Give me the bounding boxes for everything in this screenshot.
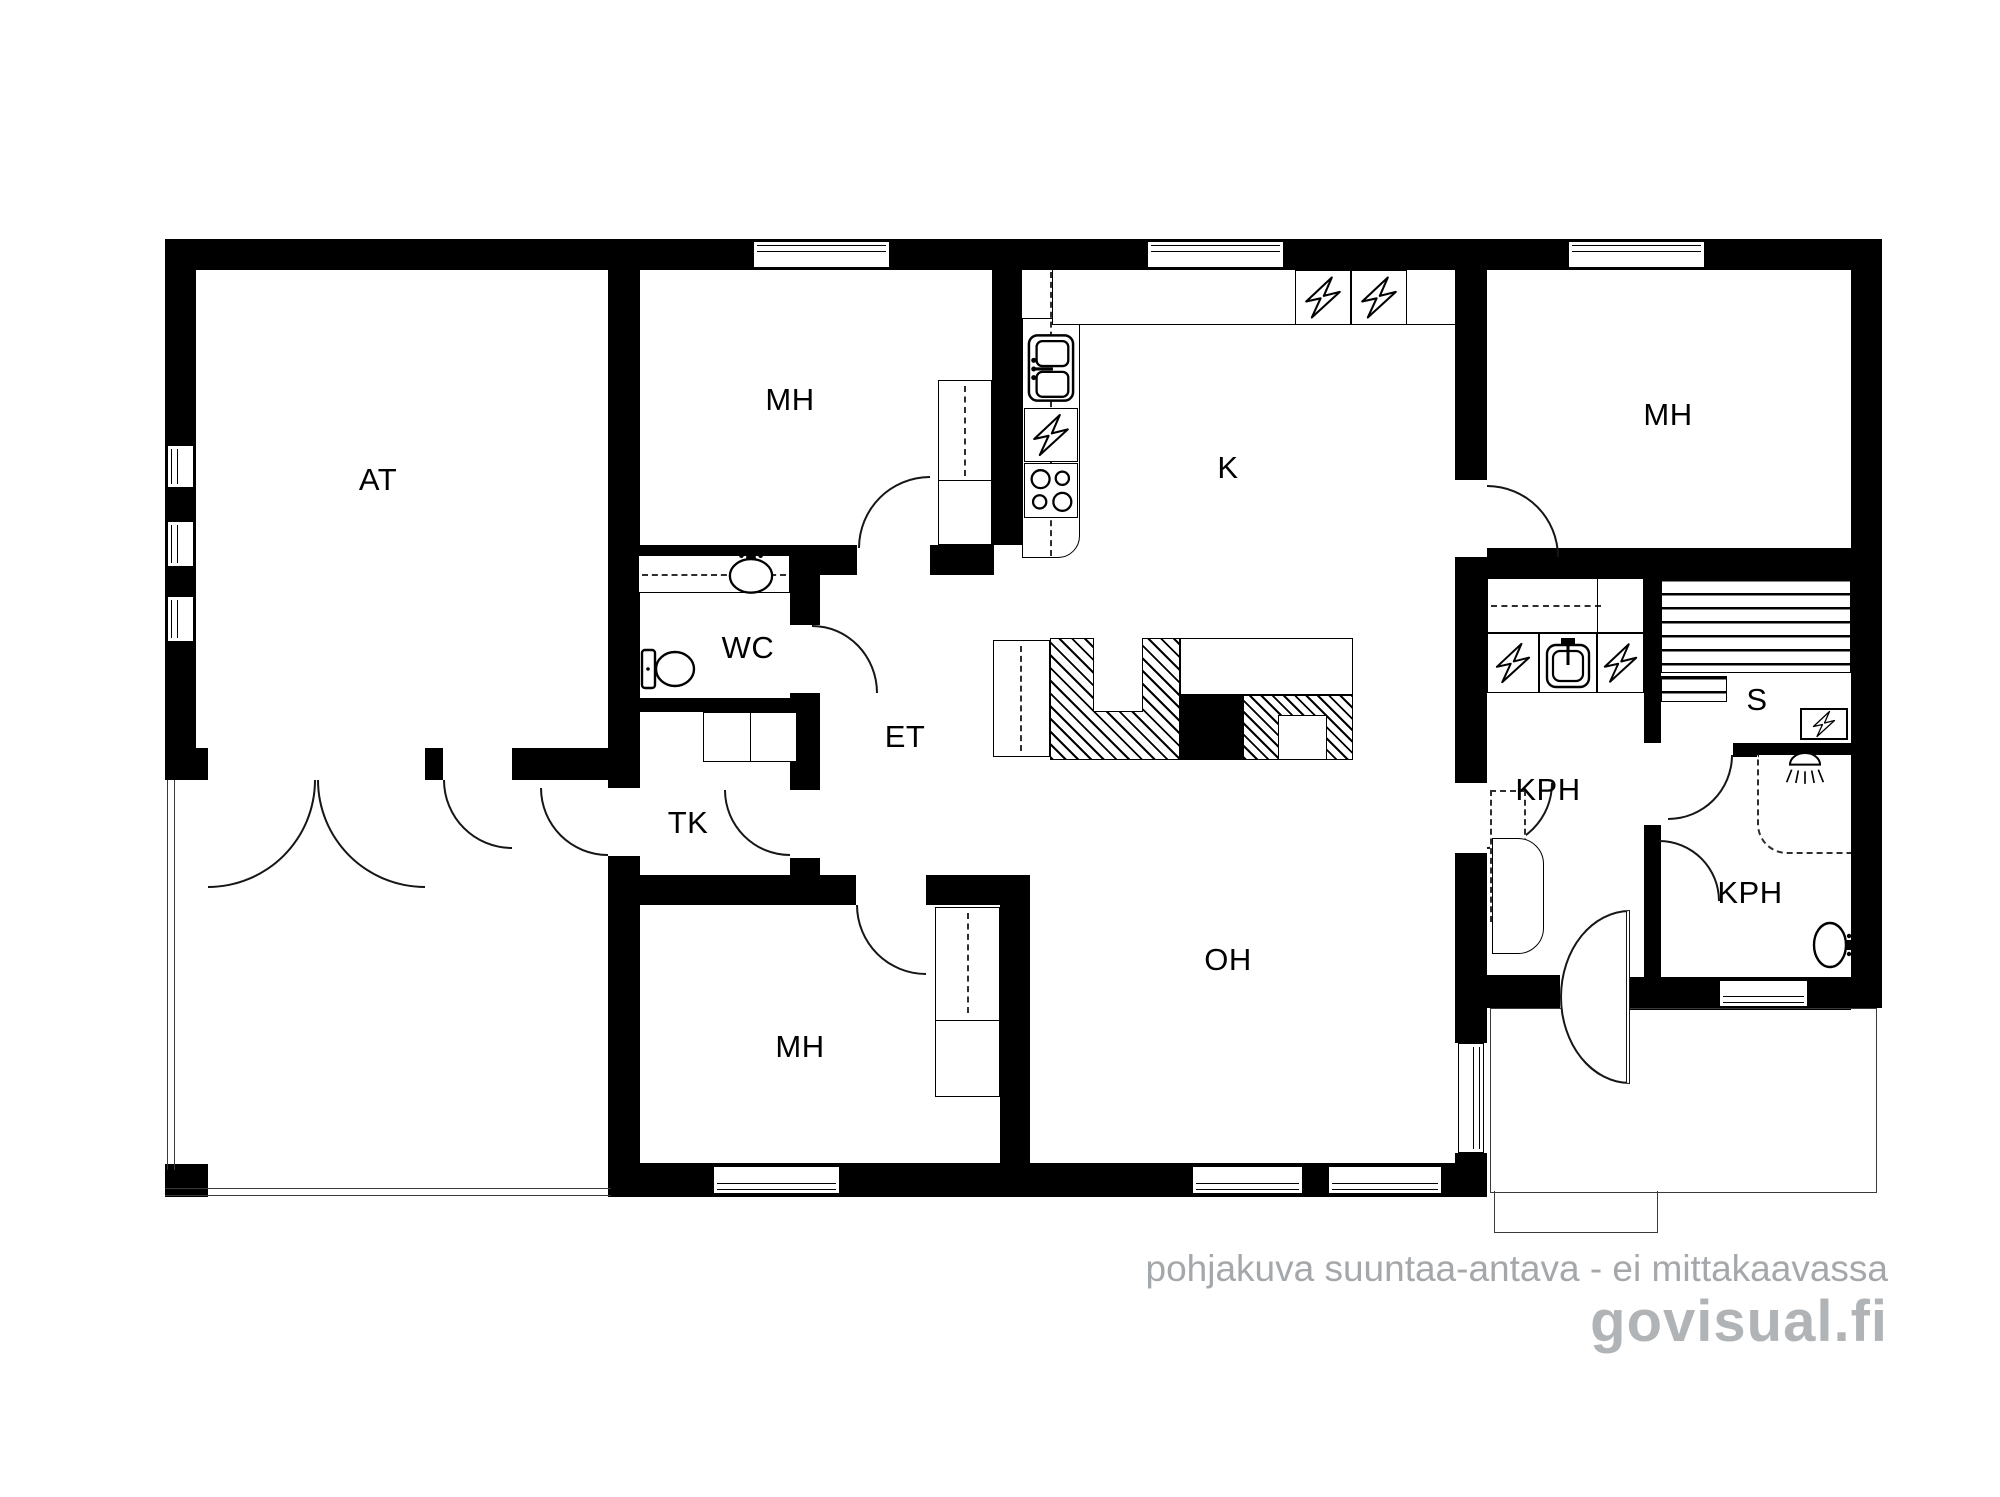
window-top-3	[1568, 241, 1705, 268]
garage-door-right-leaf	[317, 780, 425, 888]
toilet-icon	[640, 646, 696, 692]
dryer-lightning-icon	[1598, 636, 1643, 690]
wc-door	[812, 625, 878, 693]
tk-et-door	[724, 790, 790, 856]
fireplace-notch	[1093, 638, 1143, 712]
utility-cabinet	[1492, 838, 1544, 954]
mh-top-wardrobe-dash	[964, 386, 966, 476]
mh-right-door	[1487, 485, 1559, 557]
window-left-1	[167, 445, 194, 488]
room-label-tk: TK	[668, 805, 709, 841]
room-label-wc: WC	[722, 630, 775, 666]
room-label-s: S	[1746, 682, 1767, 718]
garage-side-door	[443, 780, 512, 849]
wall-k-mhright-b	[1455, 557, 1487, 783]
wall-kph-bottom-left	[1455, 975, 1560, 1008]
dishwasher-lightning-icon	[1027, 410, 1075, 460]
window-oh-2	[1328, 1166, 1442, 1194]
window-mh-bottom	[713, 1166, 840, 1194]
sauna-door	[1668, 755, 1733, 820]
wall-mhbottom-top-b	[926, 875, 1030, 905]
wall-k-mhright-c	[1455, 853, 1487, 975]
kitchen-sink-icon	[1027, 333, 1075, 403]
wall-garage-bottom-b	[425, 748, 443, 780]
sauna-stove-lightning-icon	[1805, 709, 1843, 739]
room-label-at: AT	[359, 462, 397, 498]
room-label-oh: OH	[1204, 942, 1252, 978]
mh-top-wardrobe-shelf	[938, 480, 992, 481]
wall-garage-bottom-a	[165, 748, 208, 780]
wall-garage-bottom-c	[512, 748, 608, 780]
window-oh-right	[1458, 1043, 1484, 1153]
sauna-benches	[1661, 578, 1851, 673]
wall-mhbottom-right	[1000, 905, 1030, 1163]
room-label-et: ET	[885, 719, 926, 755]
fridge-lightning-icon	[1299, 272, 1347, 323]
garage-door-left-leaf	[208, 780, 316, 888]
window-kph	[1719, 980, 1808, 1007]
wall-oh-right-lower	[1455, 1153, 1487, 1197]
carport-outline-left	[167, 780, 175, 1170]
wall-mhtop-kitchen	[992, 270, 1022, 545]
terrace-outline	[1490, 1008, 1877, 1193]
window-left-3	[167, 596, 194, 642]
room-label-kph-right: KPH	[1717, 875, 1782, 911]
kph-right-door	[1659, 840, 1720, 901]
utility-counter-dash	[1491, 605, 1601, 607]
utility-sink-icon	[1543, 635, 1593, 691]
fireplace-hearth	[1180, 638, 1353, 695]
disclaimer-text: pohjakuva suuntaa-antava - ei mittakaava…	[1146, 1248, 1889, 1290]
sauna-bench-low	[1661, 676, 1727, 702]
floor-plan: AT MH K MH WC ET TK S KPH OH MH KPH pohj…	[0, 0, 2000, 1497]
wall-sauna-divider-upper	[1644, 578, 1661, 743]
freezer-lightning-icon	[1355, 272, 1403, 323]
wall-garage-right-lower	[608, 856, 640, 1197]
window-top-2	[1147, 241, 1284, 268]
washer-lightning-icon	[1490, 636, 1536, 690]
window-left-2	[167, 521, 194, 567]
shower-head-icon	[1780, 750, 1830, 786]
wall-right	[1851, 239, 1882, 1008]
window-top-1	[753, 241, 890, 268]
wall-garage-right-upper	[608, 239, 640, 788]
wall-mhtop-bottom-right	[930, 545, 994, 575]
utility-counter-divider	[1597, 578, 1598, 633]
fireplace-black-mass	[1180, 695, 1243, 760]
terrace-step-outline	[1494, 1191, 1658, 1233]
wall-wc-bottom	[638, 698, 820, 712]
wall-left	[165, 239, 196, 780]
wall-wc-right-upper	[790, 575, 820, 625]
brand-logo-text: govisual.fi	[1590, 1288, 1888, 1355]
room-label-kph-left: KPH	[1515, 772, 1580, 808]
room-label-mh-bottom: MH	[775, 1029, 824, 1065]
mh-top-door	[858, 476, 930, 548]
entry-door	[540, 788, 608, 856]
wc-basin-icon	[727, 551, 775, 595]
window-oh-1	[1192, 1166, 1303, 1194]
et-wardrobe-dash	[1020, 646, 1022, 751]
wall-k-mhright-a	[1455, 270, 1487, 480]
mh-bottom-wardrobe-dash	[967, 913, 969, 1013]
carport-outline-bottom	[165, 1188, 611, 1196]
kph-basin-icon	[1812, 920, 1854, 970]
room-label-mh-top: MH	[765, 382, 814, 418]
room-label-mh-right: MH	[1643, 397, 1692, 433]
mh-bottom-door	[856, 905, 926, 975]
stove-burners-icon	[1026, 465, 1076, 516]
tk-closet-divider	[750, 712, 751, 762]
mh-bottom-wardrobe-shelf	[935, 1020, 1000, 1021]
wall-mhbottom-top-a	[608, 875, 856, 905]
room-label-k: K	[1217, 450, 1238, 486]
fireplace-opening	[1278, 715, 1327, 760]
